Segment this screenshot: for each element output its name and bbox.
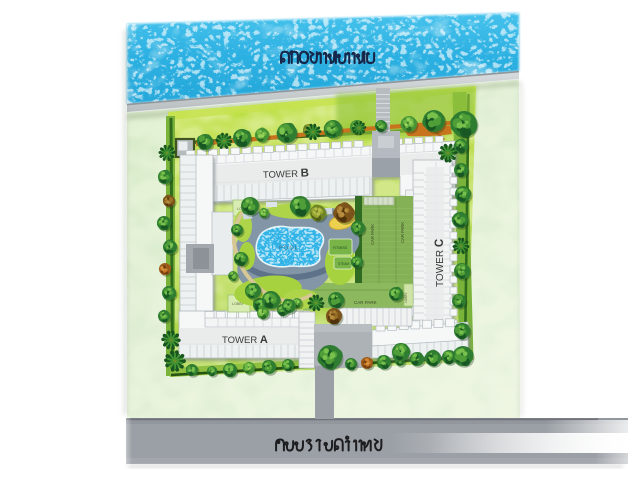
svg-text:LOBBY: LOBBY xyxy=(404,291,408,303)
svg-text:CAR PARK: CAR PARK xyxy=(370,224,375,245)
svg-text:TOWER C: TOWER C xyxy=(434,239,446,287)
svg-text:STEAM: STEAM xyxy=(338,262,349,266)
svg-text:POOL: POOL xyxy=(279,246,299,252)
svg-text:CAR PARK: CAR PARK xyxy=(354,300,377,305)
svg-text:FITNESS: FITNESS xyxy=(333,246,348,250)
svg-text:TOWER A: TOWER A xyxy=(222,334,268,346)
svg-text:TOWER B: TOWER B xyxy=(263,167,310,181)
svg-text:CAR PARK: CAR PARK xyxy=(400,222,405,243)
